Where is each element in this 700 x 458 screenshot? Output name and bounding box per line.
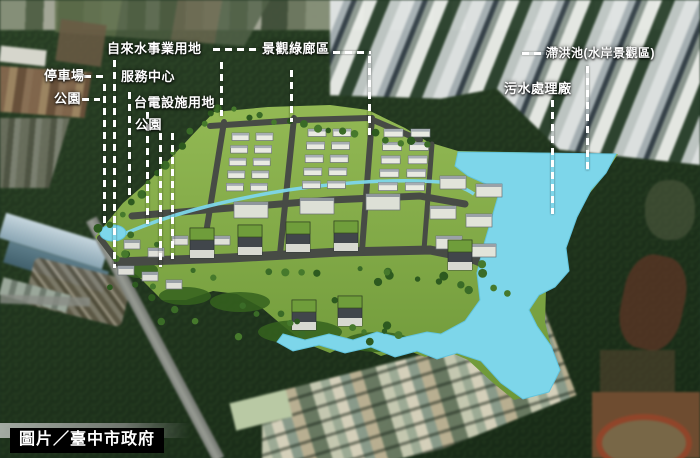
leader-line: [586, 66, 589, 170]
leader-line: [368, 56, 371, 136]
label-sewage-plant: 污水處理廠: [504, 82, 572, 95]
leader-line: [128, 92, 131, 196]
label-taipower-facility: 台電設施用地: [134, 96, 215, 109]
leader-line: [82, 98, 100, 101]
leader-line: [159, 133, 162, 267]
label-service-center: 服務中心: [121, 70, 175, 83]
leader-line: [551, 100, 554, 214]
photo-credit-caption: 圖片／臺中市政府: [10, 428, 164, 453]
aerial-rendering-image: 停車場 公園 自來水事業用地 服務中心 台電設施用地 公園 景觀綠廊區 滯洪池(…: [0, 0, 700, 458]
label-detention-pond: 滯洪池(水岸景觀區): [546, 47, 655, 59]
leader-line: [220, 62, 223, 116]
leader-line: [113, 60, 116, 268]
label-park-1: 公園: [54, 92, 81, 105]
leader-line: [213, 48, 260, 51]
annotation-overlay: 停車場 公園 自來水事業用地 服務中心 台電設施用地 公園 景觀綠廊區 滯洪池(…: [0, 0, 700, 458]
leader-line: [522, 52, 547, 55]
label-water-utility: 自來水事業用地: [107, 42, 202, 55]
label-parking-lot: 停車場: [44, 69, 85, 82]
leader-line: [84, 75, 103, 78]
leader-line: [290, 70, 293, 122]
label-park-2: 公園: [135, 118, 162, 131]
label-green-corridor: 景觀綠廊區: [262, 42, 330, 55]
leader-line: [103, 84, 106, 224]
leader-line: [333, 51, 371, 54]
leader-line: [171, 133, 174, 259]
